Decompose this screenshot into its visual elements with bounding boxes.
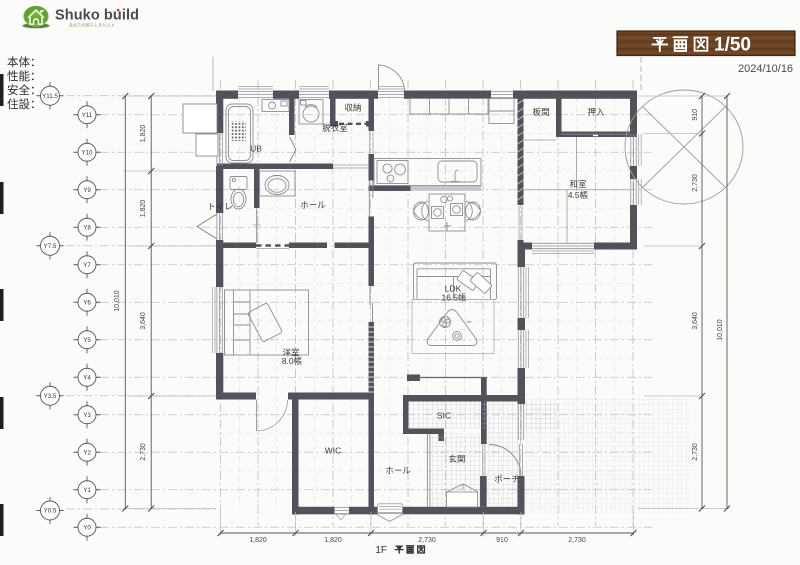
- svg-text:Y2: Y2: [83, 450, 91, 457]
- svg-text:Y11.5: Y11.5: [42, 93, 58, 100]
- svg-text:押入: 押入: [587, 107, 605, 117]
- svg-text:1,820: 1,820: [140, 200, 147, 218]
- svg-text:3,640: 3,640: [692, 312, 699, 330]
- svg-text:本体：: 本体：: [7, 55, 42, 69]
- svg-text:Y6: Y6: [83, 300, 91, 307]
- svg-text:Y5: Y5: [83, 337, 91, 344]
- svg-text:2,730: 2,730: [692, 174, 699, 192]
- svg-text:Y7.5: Y7.5: [44, 243, 57, 250]
- svg-text:Y1: Y1: [83, 487, 91, 494]
- svg-text:脱衣室: 脱衣室: [322, 123, 348, 133]
- svg-text:10,010: 10,010: [717, 319, 724, 341]
- svg-text:2,730: 2,730: [418, 537, 436, 544]
- svg-text:Y7: Y7: [83, 262, 91, 269]
- svg-text:Y3.5: Y3.5: [44, 393, 57, 400]
- svg-text:1,820: 1,820: [140, 125, 147, 143]
- svg-text:2,730: 2,730: [692, 443, 699, 461]
- svg-text:3,640: 3,640: [140, 312, 147, 330]
- svg-text:16.5帳: 16.5帳: [441, 293, 467, 303]
- svg-text:安全：: 安全：: [7, 83, 42, 97]
- svg-text:1F: 1F: [375, 545, 387, 556]
- svg-text:ポーチ: ポーチ: [494, 474, 520, 484]
- svg-text:Y10: Y10: [81, 150, 93, 157]
- svg-text:Shuko build: Shuko build: [55, 8, 139, 24]
- svg-text:Y4: Y4: [83, 375, 91, 382]
- svg-text:2,730: 2,730: [568, 537, 586, 544]
- svg-text:Y8: Y8: [83, 225, 91, 232]
- svg-text:トイレ: トイレ: [207, 202, 233, 212]
- svg-text:性能：: 性能：: [7, 69, 42, 83]
- svg-text:Y0: Y0: [83, 525, 91, 532]
- svg-text:WIC: WIC: [325, 446, 342, 456]
- svg-text:1,820: 1,820: [324, 537, 342, 544]
- svg-text:Y11: Y11: [82, 112, 93, 119]
- svg-text:ホール: ホール: [300, 200, 326, 210]
- svg-text:UB: UB: [250, 144, 262, 154]
- svg-text:和室: 和室: [569, 179, 587, 189]
- svg-text:2,730: 2,730: [140, 443, 147, 461]
- svg-text:4.5帳: 4.5帳: [568, 190, 589, 200]
- svg-text:あなたの暇らしをビルド: あなたの暇らしをビルド: [69, 22, 115, 29]
- svg-text:2024/10/16: 2024/10/16: [738, 63, 793, 75]
- svg-text:収納: 収納: [344, 103, 361, 113]
- svg-text:1,820: 1,820: [249, 537, 267, 544]
- svg-text:910: 910: [496, 537, 508, 544]
- svg-text:Y9: Y9: [83, 187, 91, 194]
- svg-text:SIC: SIC: [437, 411, 451, 421]
- svg-text:10,010: 10,010: [114, 290, 121, 312]
- svg-text:Y3: Y3: [83, 412, 91, 419]
- svg-text:住設：: 住設：: [7, 97, 42, 111]
- svg-text:ホール: ホール: [385, 466, 411, 476]
- svg-text:1/50: 1/50: [714, 35, 751, 56]
- svg-text:910: 910: [692, 109, 699, 121]
- svg-text:玄関: 玄関: [448, 454, 465, 464]
- svg-text:Y0.5: Y0.5: [44, 508, 57, 515]
- svg-text:板間: 板間: [532, 107, 549, 117]
- svg-text:8.0帳: 8.0帳: [282, 356, 303, 366]
